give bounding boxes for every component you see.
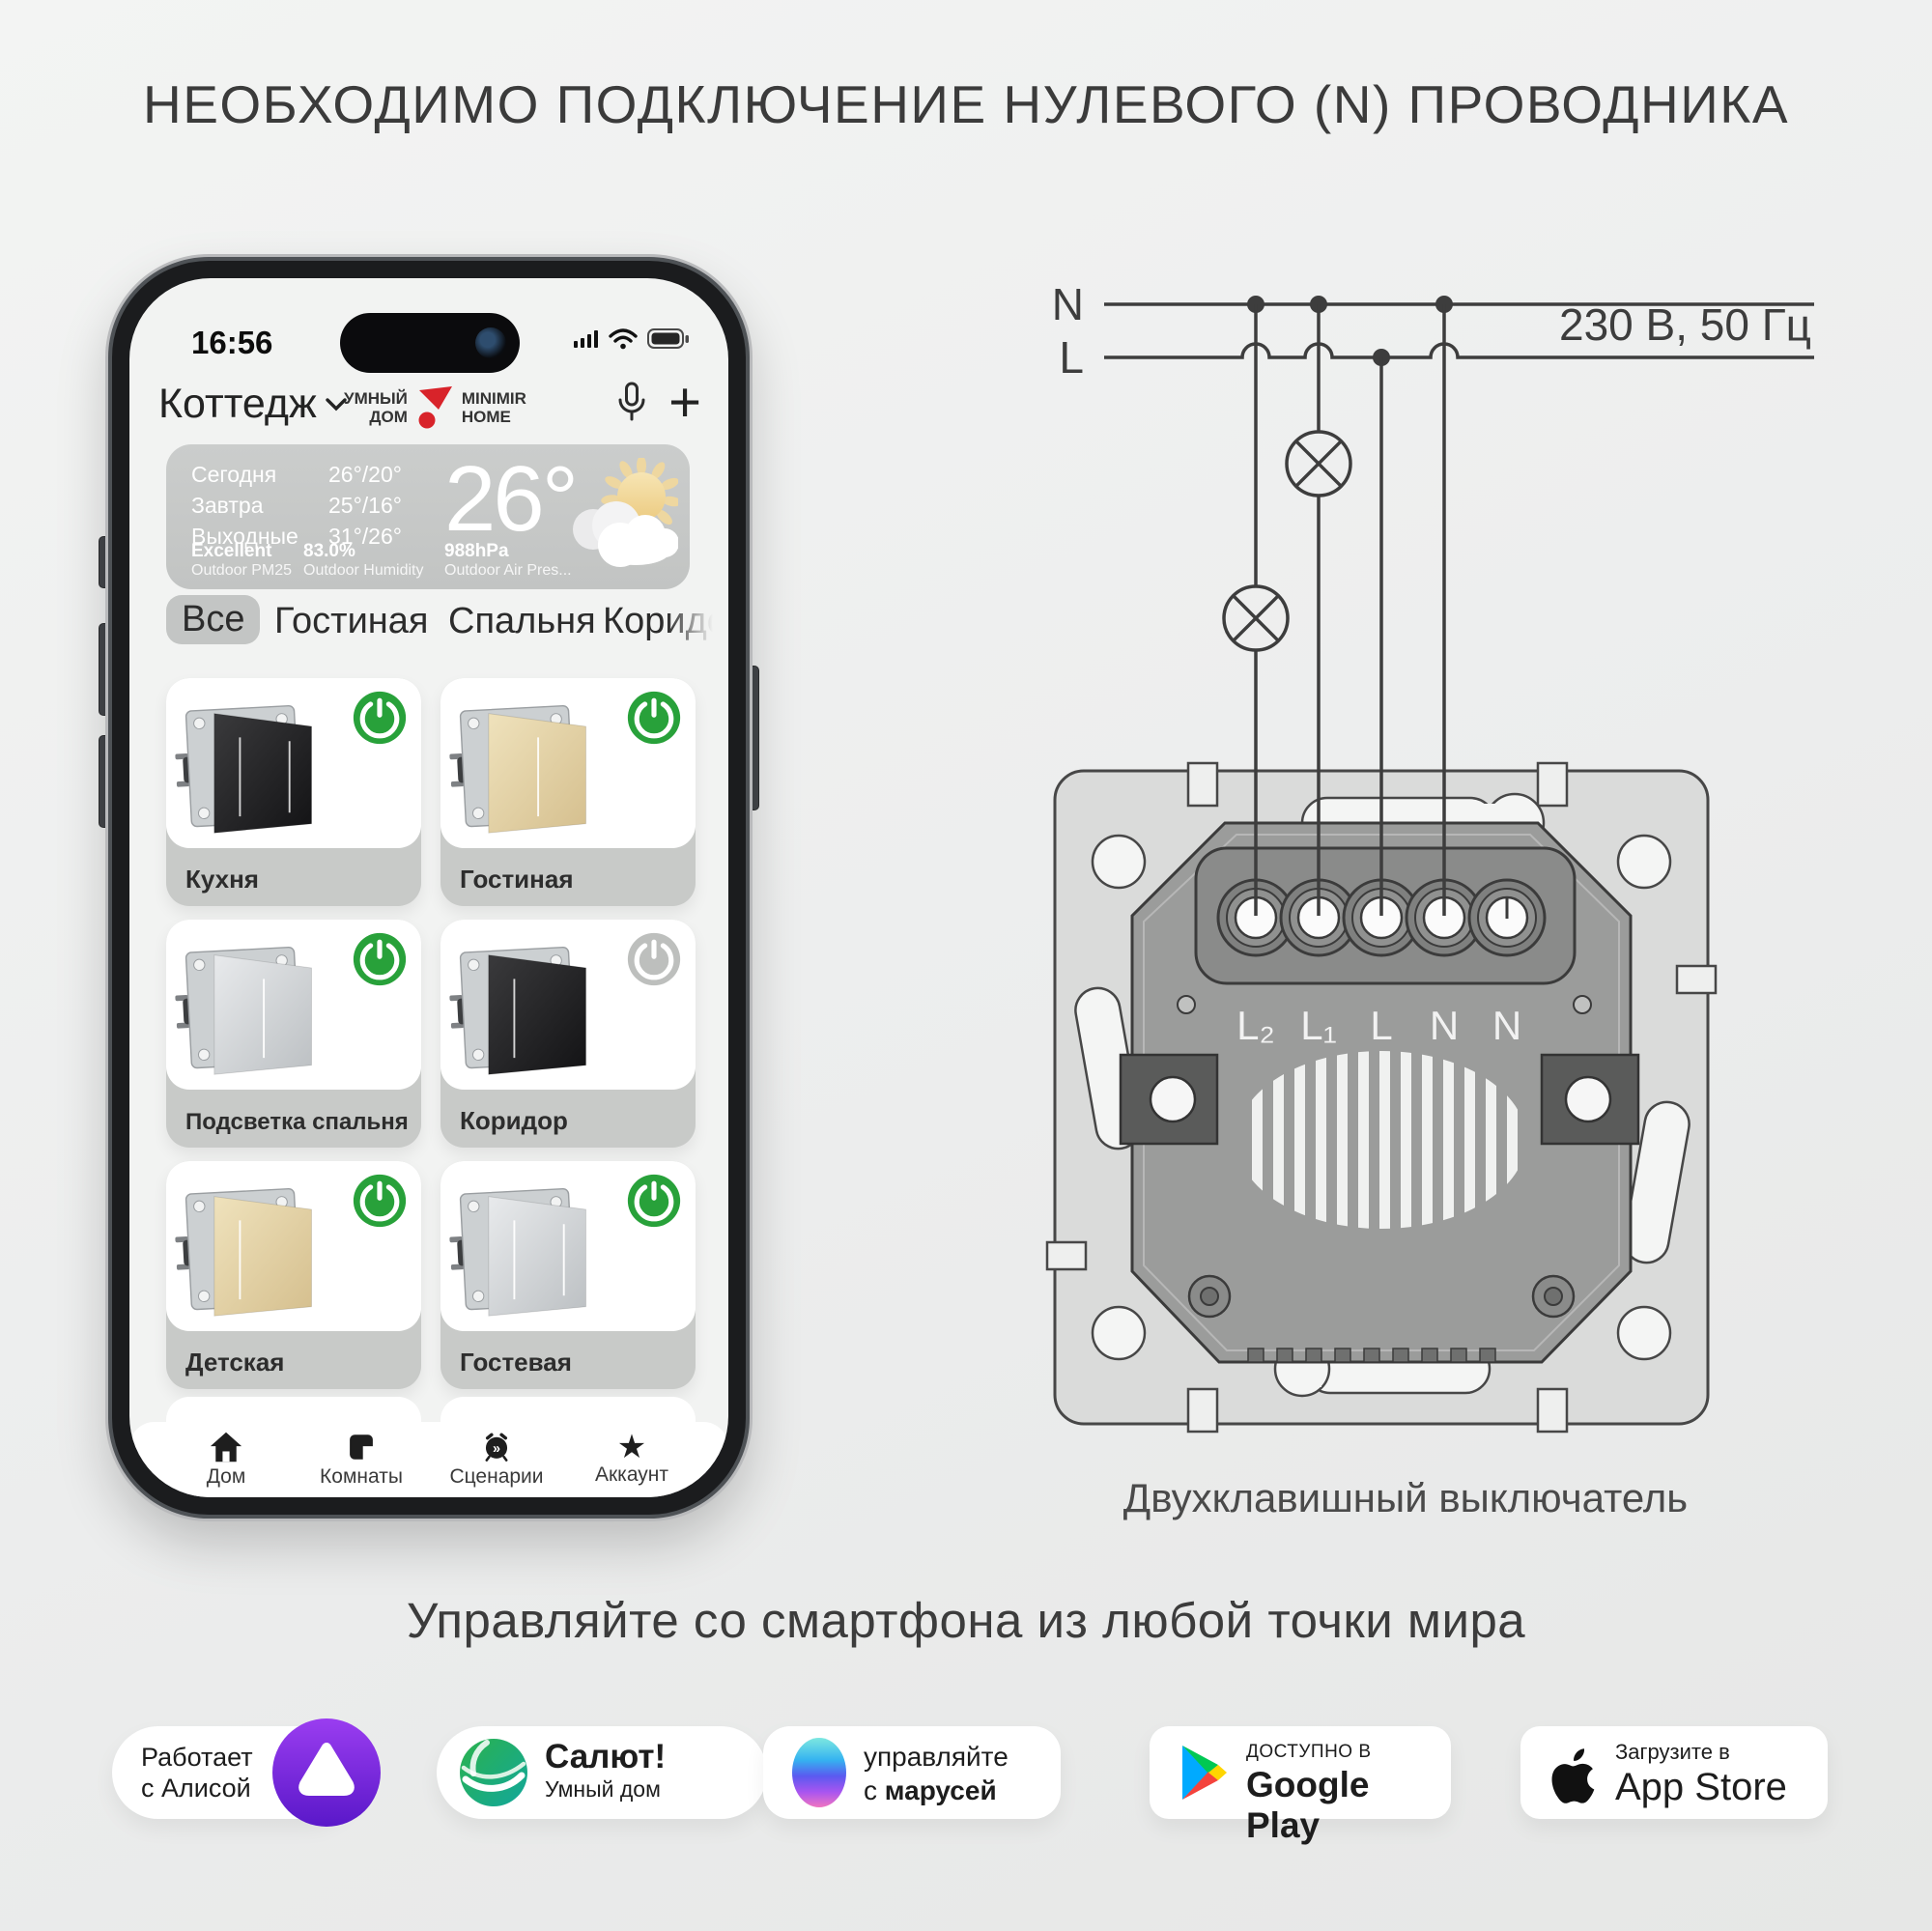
metric-value: Excellent <box>191 541 271 562</box>
power-toggle-on[interactable] <box>626 1173 682 1229</box>
google-play-icon <box>1173 1742 1229 1803</box>
page-title: НЕОБХОДИМО ПОДКЛЮЧЕНИЕ НУЛЕВОГО (N) ПРОВ… <box>0 73 1932 135</box>
device-image <box>440 678 696 848</box>
terminal-label-l: L <box>1370 1003 1392 1048</box>
badge-google-play-text: ДОСТУПНО В Google Play <box>1246 1742 1451 1846</box>
badge-salut: Салют! Умный дом <box>437 1726 767 1819</box>
diagram-caption: Двухклавишный выключатель <box>1123 1475 1688 1520</box>
app-logo: УМНЫЙДОМ MINIMIRHOME <box>344 386 526 431</box>
switch-image-silver-2key <box>448 1173 595 1320</box>
terminal-label-n1: N <box>1430 1003 1459 1048</box>
device-name: Кухня <box>185 865 259 895</box>
signal-icon <box>574 328 599 350</box>
switch-mechanism: L₂ L₁ L N N <box>1121 823 1638 1362</box>
device-card-living-room[interactable]: Гостиная <box>440 678 696 906</box>
front-camera <box>475 327 506 358</box>
device-name: Коридор <box>460 1106 568 1136</box>
power-toggle-on[interactable] <box>352 1173 408 1229</box>
status-icons <box>574 328 690 350</box>
alice-icon <box>270 1717 383 1829</box>
power-toggle-on[interactable] <box>352 690 408 746</box>
terminal-label-n2: N <box>1492 1003 1521 1048</box>
nav-item-home[interactable]: Дом <box>173 1431 279 1489</box>
switch-image-champagne-1key <box>174 1173 321 1320</box>
wifi-icon <box>609 328 638 350</box>
header-actions: + <box>616 375 701 431</box>
svg-text:»: » <box>493 1441 500 1457</box>
device-card-corridor[interactable]: Коридор <box>440 920 696 1148</box>
badge-alice: Работаетс Алисой <box>112 1726 355 1819</box>
lamp-symbol <box>1224 586 1288 650</box>
home-name: Коттедж <box>158 381 317 428</box>
claw-screw <box>1151 1077 1195 1122</box>
badge-marusia-text: управляйте с марусей <box>864 1740 1009 1807</box>
sun-clouds-icon <box>560 458 678 572</box>
device-image <box>440 1161 696 1331</box>
app-logo-left-text: УМНЫЙДОМ <box>344 390 408 426</box>
badge-alice-text: Работаетс Алисой <box>141 1742 253 1804</box>
badge-app-store-text: Загрузите в App Store <box>1615 1740 1787 1809</box>
switch-image-silver-1key <box>174 931 321 1078</box>
device-image <box>166 920 421 1090</box>
n-line-label: N <box>1052 279 1084 329</box>
apple-icon <box>1546 1741 1600 1804</box>
l-line-label: L <box>1059 332 1084 383</box>
metric-label: Outdoor Air Pres... <box>444 562 572 580</box>
voltage-label: 230 В, 50 Гц <box>1559 299 1811 350</box>
tab-bedroom[interactable]: Спальня <box>448 601 596 642</box>
device-card-kitchen[interactable]: Кухня <box>166 678 421 906</box>
switch-image-black-2key <box>174 690 321 837</box>
weather-widget[interactable]: Сегодня 26°/20° Завтра 25°/16° Выходные … <box>166 444 690 589</box>
switch-image-champagne-1key <box>448 690 595 837</box>
scenarios-icon: » <box>479 1431 514 1463</box>
power-toggle-on[interactable] <box>352 931 408 987</box>
badge-app-store: Загрузите в App Store <box>1520 1726 1828 1819</box>
forecast-temp: 25°/16° <box>328 493 402 519</box>
metric-label: Outdoor Humidity <box>303 562 424 580</box>
claw-screw <box>1566 1077 1610 1122</box>
add-device-button[interactable]: + <box>668 375 701 431</box>
tab-all[interactable]: Все <box>166 595 260 644</box>
status-time: 16:56 <box>191 325 272 361</box>
forecast-day: Завтра <box>191 493 264 519</box>
lamp-symbol <box>1287 432 1350 496</box>
bottom-nav: Дом Комнаты » Сценарии <box>129 1422 728 1497</box>
rooms-icon <box>345 1431 378 1463</box>
subtitle: Управляйте со смартфона из любой точки м… <box>0 1592 1932 1649</box>
device-image <box>166 1161 421 1331</box>
salut-icon <box>458 1737 529 1808</box>
home-icon <box>209 1431 243 1463</box>
infographic-canvas: НЕОБХОДИМО ПОДКЛЮЧЕНИЕ НУЛЕВОГО (N) ПРОВ… <box>0 0 1932 1931</box>
device-card-guest-room[interactable]: Гостевая <box>440 1161 696 1389</box>
device-image <box>166 678 421 848</box>
nav-item-rooms[interactable]: Комнаты <box>308 1431 414 1489</box>
power-toggle-off[interactable] <box>626 931 682 987</box>
device-card-bedroom-light[interactable]: Подсветка спальня <box>166 920 421 1148</box>
nav-item-account[interactable]: ★ Аккаунт <box>579 1433 685 1487</box>
wiring-diagram: N L 230 В, 50 Гц <box>1005 261 1874 1546</box>
tab-living-room[interactable]: Гостиная <box>274 601 429 642</box>
power-toggle-on[interactable] <box>626 690 682 746</box>
tabs-fade <box>667 589 728 657</box>
forecast-day: Сегодня <box>191 462 276 488</box>
marusia-icon <box>790 1736 848 1809</box>
minimir-flag-icon <box>415 386 454 431</box>
current-temp: 26° <box>444 446 576 553</box>
badge-google-play: ДОСТУПНО В Google Play <box>1150 1726 1451 1819</box>
metric-value: 83.0% <box>303 541 355 562</box>
phone-screen: 16:56 Коттедж У <box>129 278 728 1497</box>
terminal-label-l1: L₁ <box>1300 1003 1337 1048</box>
device-name: Подсветка спальня <box>185 1109 409 1136</box>
microphone-icon[interactable] <box>616 381 647 425</box>
device-name: Гостиная <box>460 865 574 895</box>
home-selector[interactable]: Коттедж <box>158 381 348 428</box>
forecast-temp: 26°/20° <box>328 462 402 488</box>
device-image <box>440 920 696 1090</box>
metric-value: 988hPa <box>444 541 509 562</box>
device-name: Гостевая <box>460 1348 572 1377</box>
nav-item-scenarios[interactable]: » Сценарии <box>443 1431 550 1489</box>
badge-marusia: управляйте с марусей <box>763 1726 1061 1819</box>
metric-label: Outdoor PM25 <box>191 562 292 580</box>
dynamic-island <box>340 313 520 373</box>
star-icon: ★ <box>617 1433 646 1462</box>
switch-image-black-1key <box>448 931 595 1078</box>
battery-icon <box>647 328 690 350</box>
terminal-label-l2: L₂ <box>1236 1003 1275 1048</box>
badge-salut-text: Салют! Умный дом <box>545 1738 666 1803</box>
device-name: Детская <box>185 1348 284 1377</box>
device-card-kids-room[interactable]: Детская <box>166 1161 421 1389</box>
app-logo-right-text: MINIMIRHOME <box>462 390 526 426</box>
